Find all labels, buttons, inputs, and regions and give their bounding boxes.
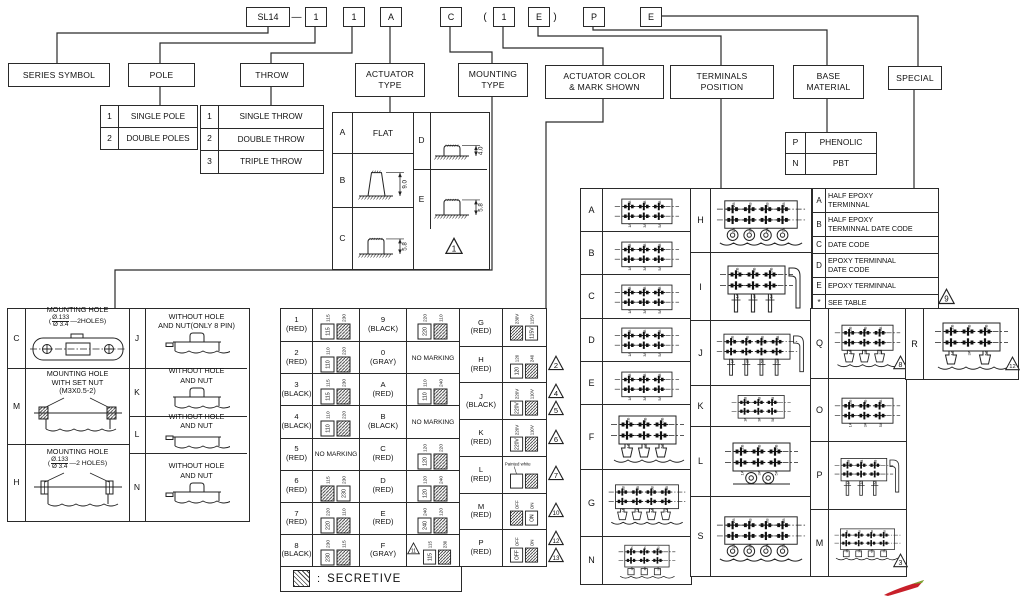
part-number-code-box-0: 1: [305, 7, 327, 27]
svg-text:220: 220: [423, 314, 429, 322]
mounting-code-K: K: [129, 368, 146, 416]
color-marking-cell-3: 115230115: [313, 373, 359, 406]
color-code-5: 5(RED): [281, 438, 313, 470]
marking-drawing-7: 220110220: [313, 503, 359, 535]
svg-text:2B: 2B: [628, 286, 632, 291]
svg-text:6: 6: [554, 434, 558, 443]
svg-text:240: 240: [423, 507, 429, 515]
svg-text:3A: 3A: [757, 417, 761, 422]
terminal-row-D: D2B1A4B3A6B5A: [581, 318, 691, 361]
base-material-table: PPHENOLICNPBT: [785, 132, 877, 175]
part-number-dash: —: [290, 9, 303, 25]
actuator-code-D: D: [413, 113, 431, 169]
marking-drawing-A: 110240110: [410, 374, 456, 406]
svg-text:4B: 4B: [864, 399, 868, 404]
category-box-special: SPECIAL: [888, 66, 942, 90]
svg-text:3A: 3A: [643, 395, 647, 400]
actuator-profile-drawing: 9.0: [356, 158, 411, 204]
no-marking-label: NO MARKING: [315, 451, 358, 458]
color-marking-cell-1: 115230115: [313, 309, 359, 341]
marking-drawing-6: 115230230: [313, 471, 359, 503]
actuator-code-B: B: [333, 153, 353, 207]
color-marking-cell-A: 110240110: [407, 373, 459, 406]
mounting-right-label: AND NUT: [180, 471, 212, 480]
legend-colon: :: [317, 573, 320, 585]
base-material-table-label-P: PHENOLIC: [806, 133, 876, 153]
svg-text:2B: 2B: [625, 417, 630, 422]
base-material-table-row-N: NPBT: [786, 153, 876, 174]
marking-drawing-L: Painted white: [503, 459, 546, 491]
actuator-profile-drawing: 5.8: [432, 177, 487, 223]
pole-table: 1SINGLE POLE2DOUBLE POLES: [100, 105, 198, 150]
color-name-label: (RED): [372, 518, 393, 527]
actuator-code-C: C: [333, 207, 353, 269]
terminal-drawing-cell-B: 2B1A4B3A6B5A: [603, 232, 691, 274]
pole-table-row-1: 1SINGLE POLE: [101, 106, 197, 127]
part-number-code-box-7: E: [640, 7, 662, 27]
connector-7: [593, 25, 827, 65]
svg-text:115: 115: [427, 540, 432, 548]
actuator-code-E: E: [413, 169, 431, 229]
color-code-J: J(BLACK): [459, 382, 503, 419]
svg-text:OFF: OFF: [514, 500, 519, 509]
svg-text:6B: 6B: [874, 460, 878, 464]
mounting-right-label: WITHOUT HOLE: [169, 366, 225, 375]
svg-text:3A: 3A: [864, 422, 868, 427]
terminal-drawing-cell-N: 2B1A4B3A6B5A: [603, 537, 691, 584]
terminal-row-O: O2B1A4B3A6B5A: [811, 378, 906, 440]
terminal-code-L: L: [691, 427, 711, 496]
svg-text:3A: 3A: [643, 266, 647, 271]
svg-text:3A: 3A: [643, 566, 647, 571]
svg-text:5A: 5A: [879, 422, 883, 427]
throw-table-code-2: 2: [201, 129, 219, 151]
color-code-D: D(RED): [359, 470, 407, 502]
category-label-terminals: POSITION: [701, 82, 744, 93]
svg-text:5A: 5A: [773, 470, 778, 475]
category-label-color: & MARK SHOWN: [569, 82, 640, 93]
svg-text:4B: 4B: [757, 397, 761, 401]
terminal-drawing-cell-E: 2B1A4B3A6B5A: [603, 362, 691, 404]
svg-text:4B: 4B: [642, 417, 647, 422]
svg-text:6B: 6B: [870, 530, 874, 534]
svg-text:2B: 2B: [731, 202, 736, 207]
svg-text:220: 220: [423, 327, 429, 336]
color-marking-cell-2: 110220110: [313, 341, 359, 374]
color-name-label: (BLACK): [368, 325, 398, 334]
terminal-schematic-A: 2B1A4B3A6B5A: [613, 192, 681, 229]
mounting-left-cell-H: MOUNTING HOLE(Ø.133Ø 3.4—2 HOLES): [26, 444, 130, 522]
svg-text:8B: 8B: [781, 518, 786, 523]
color-marking-cell-L: Painted white: [503, 456, 546, 494]
svg-text:8: 8: [899, 362, 903, 369]
terminal-schematic-S: 2B1A4B3A6B5A8B7A: [715, 509, 807, 565]
category-label-mounting: TYPE: [481, 80, 504, 91]
terminal-drawing-cell-F: 2B1A4B3A6B5A: [603, 405, 691, 469]
terminal-triangle-R: 12: [1005, 356, 1020, 371]
part-number-close: ): [549, 9, 561, 25]
svg-text:2B: 2B: [630, 547, 634, 551]
terminal-row-I: I2B1A4B3A6B5A: [691, 252, 811, 320]
svg-text:6B: 6B: [764, 202, 769, 207]
svg-text:10: 10: [553, 510, 560, 517]
marking-drawing-F: 115230115: [416, 535, 459, 567]
terminal-drawing-cell-G: 2B1A4B3A6B5A8B7A: [603, 470, 691, 536]
svg-text:5: 5: [554, 406, 558, 415]
svg-text:240: 240: [439, 379, 445, 387]
note-triangle-4: 4: [548, 383, 564, 399]
svg-text:4B: 4B: [643, 286, 647, 291]
pole-table-label-1: SINGLE POLE: [119, 106, 197, 127]
color-name-label: (RED): [286, 325, 307, 334]
svg-text:120: 120: [439, 507, 445, 515]
terminal-code-C: C: [581, 275, 603, 317]
color-marking-cell-M: OFFONON: [503, 493, 546, 531]
category-box-terminals: TERMINALSPOSITION: [670, 65, 774, 99]
note-triangle-9: 9: [938, 288, 955, 305]
color-name-label: (RED): [372, 390, 393, 399]
color-name-label: (RED): [286, 518, 307, 527]
red-logo: [882, 580, 926, 597]
svg-text:5A: 5A: [656, 566, 660, 571]
category-label-actuator: ACTUATOR: [366, 69, 414, 80]
part-number-series-box: SL14: [246, 7, 290, 27]
terminal-code-B: B: [581, 232, 603, 274]
color-marking-cell-4: 110220110: [313, 405, 359, 438]
svg-text:110: 110: [326, 347, 332, 355]
color-code-K: K(RED): [459, 419, 503, 456]
svg-text:4B: 4B: [966, 324, 971, 329]
svg-text:1A: 1A: [743, 417, 747, 422]
color-name-label: (RED): [470, 511, 491, 520]
category-label-special: SPECIAL: [896, 73, 934, 84]
mounting-right-label: WITHOUT HOLE: [169, 461, 225, 470]
svg-text:1A: 1A: [739, 470, 744, 475]
category-box-color: ACTUATOR COLOR& MARK SHOWN: [545, 65, 664, 99]
actuator-drawing-D: 4.0: [431, 113, 487, 169]
throw-table-label-3: TRIPLE THROW: [219, 151, 323, 173]
category-box-actuator: ACTUATORTYPE: [355, 63, 425, 97]
color-code-C: C(RED): [359, 438, 407, 470]
terminals-group-4: R2B1A4B3A6B5A 12: [905, 308, 1019, 380]
svg-text:4B: 4B: [860, 460, 864, 464]
terminal-schematic-O: 2B1A4B3A6B5A: [833, 391, 902, 429]
mounting-right-cell-N: WITHOUT HOLEAND NUT: [146, 453, 247, 522]
svg-text:4B: 4B: [864, 326, 868, 331]
terminal-schematic-P: 2B1A4B3A6B5A: [833, 452, 902, 499]
svg-text:220: 220: [342, 347, 348, 355]
category-box-mounting: MOUNTINGTYPE: [458, 63, 528, 97]
terminal-schematic-F: 2B1A4B3A6B5A: [609, 408, 686, 466]
color-name-label: (RED): [372, 454, 393, 463]
terminal-code-N: N: [581, 537, 603, 584]
terminal-code-R: R: [906, 309, 924, 379]
connector-2: [271, 25, 352, 63]
special-label-2: DATE CODE: [826, 237, 938, 253]
terminal-row-S: S2B1A4B3A6B5A8B7A: [691, 496, 811, 576]
terminal-schematic-E: 2B1A4B3A6B5A: [613, 365, 681, 402]
svg-text:2B: 2B: [845, 530, 849, 534]
svg-text:240: 240: [529, 354, 534, 362]
svg-text:1A: 1A: [628, 395, 632, 400]
mounting-drawing-M: [30, 397, 126, 444]
svg-text:ON: ON: [529, 514, 535, 522]
svg-text:6B: 6B: [879, 399, 883, 404]
mounting-right-label: WITHOUT HOLE: [169, 312, 225, 321]
actuator-color-table: 1(RED)1152301152(RED)1102201103(BLACK)11…: [280, 308, 547, 567]
actuator-drawing-C: 5.8: [353, 207, 414, 270]
mounting-right-cell-K: WITHOUT HOLEAND NUT: [146, 368, 247, 417]
terminal-code-H: H: [691, 189, 711, 252]
part-number-open: (: [479, 9, 491, 25]
svg-text:4: 4: [554, 389, 558, 398]
terminal-row-N: N2B1A4B3A6B5A: [581, 536, 691, 584]
special-code-2: C: [813, 237, 826, 253]
marking-drawing-C: 120220120: [410, 439, 456, 471]
color-code-A: A(RED): [359, 373, 407, 405]
svg-text:6B: 6B: [769, 267, 774, 272]
svg-text:5.8: 5.8: [477, 203, 484, 212]
note-triangle-5: 5: [548, 400, 564, 416]
svg-text:110: 110: [342, 508, 348, 516]
mounting-right-label: AND NUT(ONLY 8 PIN): [158, 321, 235, 330]
color-marking-cell-K: 220V110V220V: [503, 419, 546, 457]
terminal-drawing-cell-S: 2B1A4B3A6B5A8B7A: [711, 497, 811, 576]
svg-text:8B: 8B: [665, 486, 669, 491]
terminal-row-C: C2B1A4B3A6B5A: [581, 274, 691, 317]
terminal-drawing-cell-H: 2B1A4B3A6B5A8B7A: [711, 189, 811, 252]
svg-text:110V: 110V: [529, 426, 534, 436]
mounting-right-label: AND NUT: [180, 376, 212, 385]
color-name-label: (BLACK): [466, 401, 496, 410]
svg-text:230: 230: [342, 379, 348, 387]
mounting-code-N: N: [129, 453, 146, 521]
color-marking-cell-H: 120240120: [503, 346, 546, 384]
color-note-triangles-L: 7: [548, 465, 564, 481]
actuator-note-triangle: 1: [445, 237, 463, 260]
svg-text:6B: 6B: [658, 199, 662, 204]
svg-text:120: 120: [423, 457, 429, 466]
svg-text:4B: 4B: [752, 267, 757, 272]
special-code-4: E: [813, 278, 826, 294]
no-marking-label: NO MARKING: [412, 419, 455, 426]
color-marking-cell-D: 120240120: [407, 470, 459, 503]
svg-text:5A: 5A: [658, 352, 662, 357]
mounting-hole-spec: (Ø.133Ø 3.4—2HOLES): [49, 315, 106, 329]
terminals-group-2: H2B1A4B3A6B5A8B7AI2B1A4B3A6B5AJ2B1A4B3A6…: [690, 188, 812, 577]
part-number-code-box-1: 1: [343, 7, 365, 27]
marking-drawing-G: 230V115V115V: [503, 311, 546, 343]
svg-text:2: 2: [554, 361, 558, 370]
terminal-drawing-cell-A: 2B1A4B3A6B5A: [603, 189, 691, 231]
category-box-pole: POLE: [128, 63, 195, 87]
svg-text:1A: 1A: [628, 266, 632, 271]
svg-text:OFF: OFF: [514, 537, 519, 546]
marking-drawing-P: OFFONOFF: [503, 533, 546, 565]
legend-label: SECRETIVE: [327, 573, 401, 585]
mounting-drawing-J: [164, 330, 230, 365]
svg-text:120: 120: [423, 489, 429, 498]
color-code-P: P(RED): [459, 529, 503, 566]
terminal-code-Q: Q: [811, 309, 829, 378]
mounting-right-label: AND NUT: [180, 421, 212, 430]
svg-text:220: 220: [439, 443, 445, 451]
color-marking-cell-0: NO MARKING: [407, 341, 459, 374]
actuator-drawing-E: 5.8: [431, 169, 487, 230]
note-triangle-1: 1: [445, 237, 463, 255]
terminal-code-O: O: [811, 379, 829, 440]
mounting-table: CMOUNTING HOLE(Ø.133Ø 3.4—2HOLES) MMOUNT…: [7, 308, 250, 522]
connector-1: [160, 25, 315, 63]
terminal-row-K: K2B1A4B3A6B5A: [691, 385, 811, 425]
marking-drawing-4: 110220110: [313, 406, 359, 438]
color-code-0: 0(GRAY): [359, 341, 407, 373]
base-material-table-row-P: PPHENOLIC: [786, 133, 876, 153]
base-material-table-code-P: P: [786, 133, 806, 153]
svg-text:4B: 4B: [643, 372, 647, 377]
color-code-2: 2(RED): [281, 341, 313, 373]
color-marking-cell-C: 120220120: [407, 438, 459, 471]
svg-text:1A: 1A: [628, 309, 632, 314]
color-name-label: (BLACK): [282, 550, 312, 559]
color-code-3: 3(BLACK): [281, 373, 313, 405]
marking-drawing-J: 220V110V220V: [503, 386, 546, 418]
svg-text:2B: 2B: [739, 444, 744, 449]
category-box-throw: THROW: [240, 63, 304, 87]
svg-text:220V: 220V: [514, 389, 519, 399]
terminal-row-Q: Q2B1A4B3A6B5A 8: [811, 309, 906, 378]
terminal-code-F: F: [581, 405, 603, 469]
color-name-label: (GRAY): [370, 550, 396, 559]
throw-table-code-1: 1: [201, 106, 219, 128]
svg-text:6B: 6B: [761, 335, 765, 340]
terminal-drawing-cell-C: 2B1A4B3A6B5A: [603, 275, 691, 317]
terminal-row-H: H2B1A4B3A6B5A8B7A: [691, 189, 811, 252]
color-marking-cell-G: 230V115V115V: [503, 309, 546, 346]
mounting-drawing-C: [30, 330, 126, 371]
svg-text:2B: 2B: [848, 326, 852, 331]
terminal-row-R: R2B1A4B3A6B5A 12: [906, 309, 1018, 379]
mounting-code-J: J: [129, 309, 146, 368]
svg-text:12: 12: [553, 537, 560, 544]
svg-text:220: 220: [326, 521, 332, 530]
throw-table-row-2: 2DOUBLE THROW: [201, 128, 323, 151]
svg-text:1: 1: [452, 243, 457, 253]
terminal-code-I: I: [691, 253, 711, 320]
mounting-code-H: H: [8, 444, 26, 521]
terminal-drawing-cell-R: 2B1A4B3A6B5A 12: [924, 309, 1018, 379]
throw-table-label-1: SINGLE THROW: [219, 106, 323, 128]
svg-text:6B: 6B: [773, 444, 778, 449]
pole-table-label-2: DOUBLE POLES: [119, 128, 197, 149]
svg-text:Painted white: Painted white: [505, 462, 531, 467]
terminal-schematic-C: 2B1A4B3A6B5A: [613, 278, 681, 315]
svg-text:110: 110: [326, 360, 332, 369]
mounting-left-cell-C: MOUNTING HOLE(Ø.133Ø 3.4—2HOLES): [26, 309, 130, 368]
connector-5: [503, 25, 603, 65]
svg-text:4B: 4B: [858, 530, 862, 534]
svg-text:220: 220: [342, 411, 348, 419]
mounting-drawing-N: [164, 480, 230, 515]
mounting-drawing-H: [30, 472, 126, 519]
note-triangle-2: 2: [548, 355, 564, 371]
marking-drawing-8: 230115230: [313, 535, 359, 567]
svg-text:5.8: 5.8: [401, 242, 408, 251]
svg-text:2B: 2B: [731, 518, 736, 523]
mounting-right-cell-J: WITHOUT HOLEAND NUT(ONLY 8 PIN): [146, 309, 247, 368]
svg-text:6B: 6B: [658, 329, 662, 334]
svg-text:110: 110: [439, 314, 445, 322]
special-label-0: HALF EPOXYTERMINNAL: [826, 189, 938, 212]
mounting-code-M: M: [8, 368, 26, 444]
svg-text:5A: 5A: [658, 395, 662, 400]
mounting-right-cell-L: WITHOUT HOLEAND NUT: [146, 416, 247, 454]
svg-text:120: 120: [423, 443, 429, 451]
svg-text:1A: 1A: [628, 352, 632, 357]
svg-text:115: 115: [326, 393, 332, 402]
svg-text:6B: 6B: [656, 547, 660, 551]
terminal-code-E: E: [581, 362, 603, 404]
terminal-schematic-Q: 2B1A4B3A6B5A: [833, 318, 902, 370]
category-label-pole: POLE: [150, 70, 174, 81]
color-marking-cell-5: NO MARKING: [313, 438, 359, 471]
svg-text:2B: 2B: [628, 243, 632, 248]
category-box-base: BASEMATERIAL: [793, 65, 864, 99]
color-marking-cell-7: 220110220: [313, 502, 359, 535]
terminal-code-J: J: [691, 321, 711, 385]
category-label-actuator: TYPE: [378, 80, 401, 91]
color-marking-cell-F: 11115230115: [407, 534, 459, 567]
color-note-triangles-P: 12 13: [548, 530, 564, 563]
svg-text:3: 3: [899, 560, 903, 567]
terminal-schematic-K: 2B1A4B3A6B5A: [730, 389, 792, 423]
svg-text:2B: 2B: [949, 324, 954, 329]
svg-text:4.0: 4.0: [477, 146, 484, 155]
actuator-flat-label: FLAT: [373, 128, 393, 138]
svg-text:6B: 6B: [983, 324, 988, 329]
svg-text:230: 230: [342, 489, 348, 498]
color-name-label: (RED): [470, 327, 491, 336]
svg-text:6B: 6B: [658, 372, 662, 377]
terminal-drawing-cell-I: 2B1A4B3A6B5A: [711, 253, 811, 320]
part-number-code-box-4: 1: [493, 7, 515, 27]
color-marking-cell-B: NO MARKING: [407, 405, 459, 438]
mounting-right-label: WITHOUT HOLE: [169, 412, 225, 421]
terminal-schematic-N: 2B1A4B3A6B5A: [617, 539, 677, 581]
svg-text:9: 9: [944, 295, 949, 304]
svg-text:110: 110: [326, 411, 332, 419]
actuator-drawing-B: 9.0: [353, 153, 414, 208]
special-code-1: B: [813, 213, 826, 236]
color-code-9: 9(BLACK): [359, 309, 407, 341]
svg-text:230: 230: [442, 540, 447, 548]
color-name-label: (RED): [286, 454, 307, 463]
terminal-row-B: B2B1A4B3A6B5A: [581, 231, 691, 274]
actuator-profile-drawing: 4.0: [432, 118, 487, 164]
terminal-code-M: M: [811, 510, 829, 576]
color-marking-cell-9: 220110220: [407, 309, 459, 341]
terminal-drawing-cell-L: 2B1A4B3A6B5A: [711, 427, 811, 496]
category-label-terminals: TERMINALS: [697, 71, 748, 82]
svg-text:230: 230: [342, 314, 348, 322]
svg-text:12: 12: [1009, 364, 1015, 370]
color-name-label: (RED): [286, 486, 307, 495]
svg-text:5A: 5A: [771, 417, 775, 422]
part-number-code-box-2: A: [380, 7, 402, 27]
marking-drawing-9: 220110220: [410, 309, 456, 341]
color-name-label: (BLACK): [282, 422, 312, 431]
no-marking-label: NO MARKING: [412, 355, 455, 362]
